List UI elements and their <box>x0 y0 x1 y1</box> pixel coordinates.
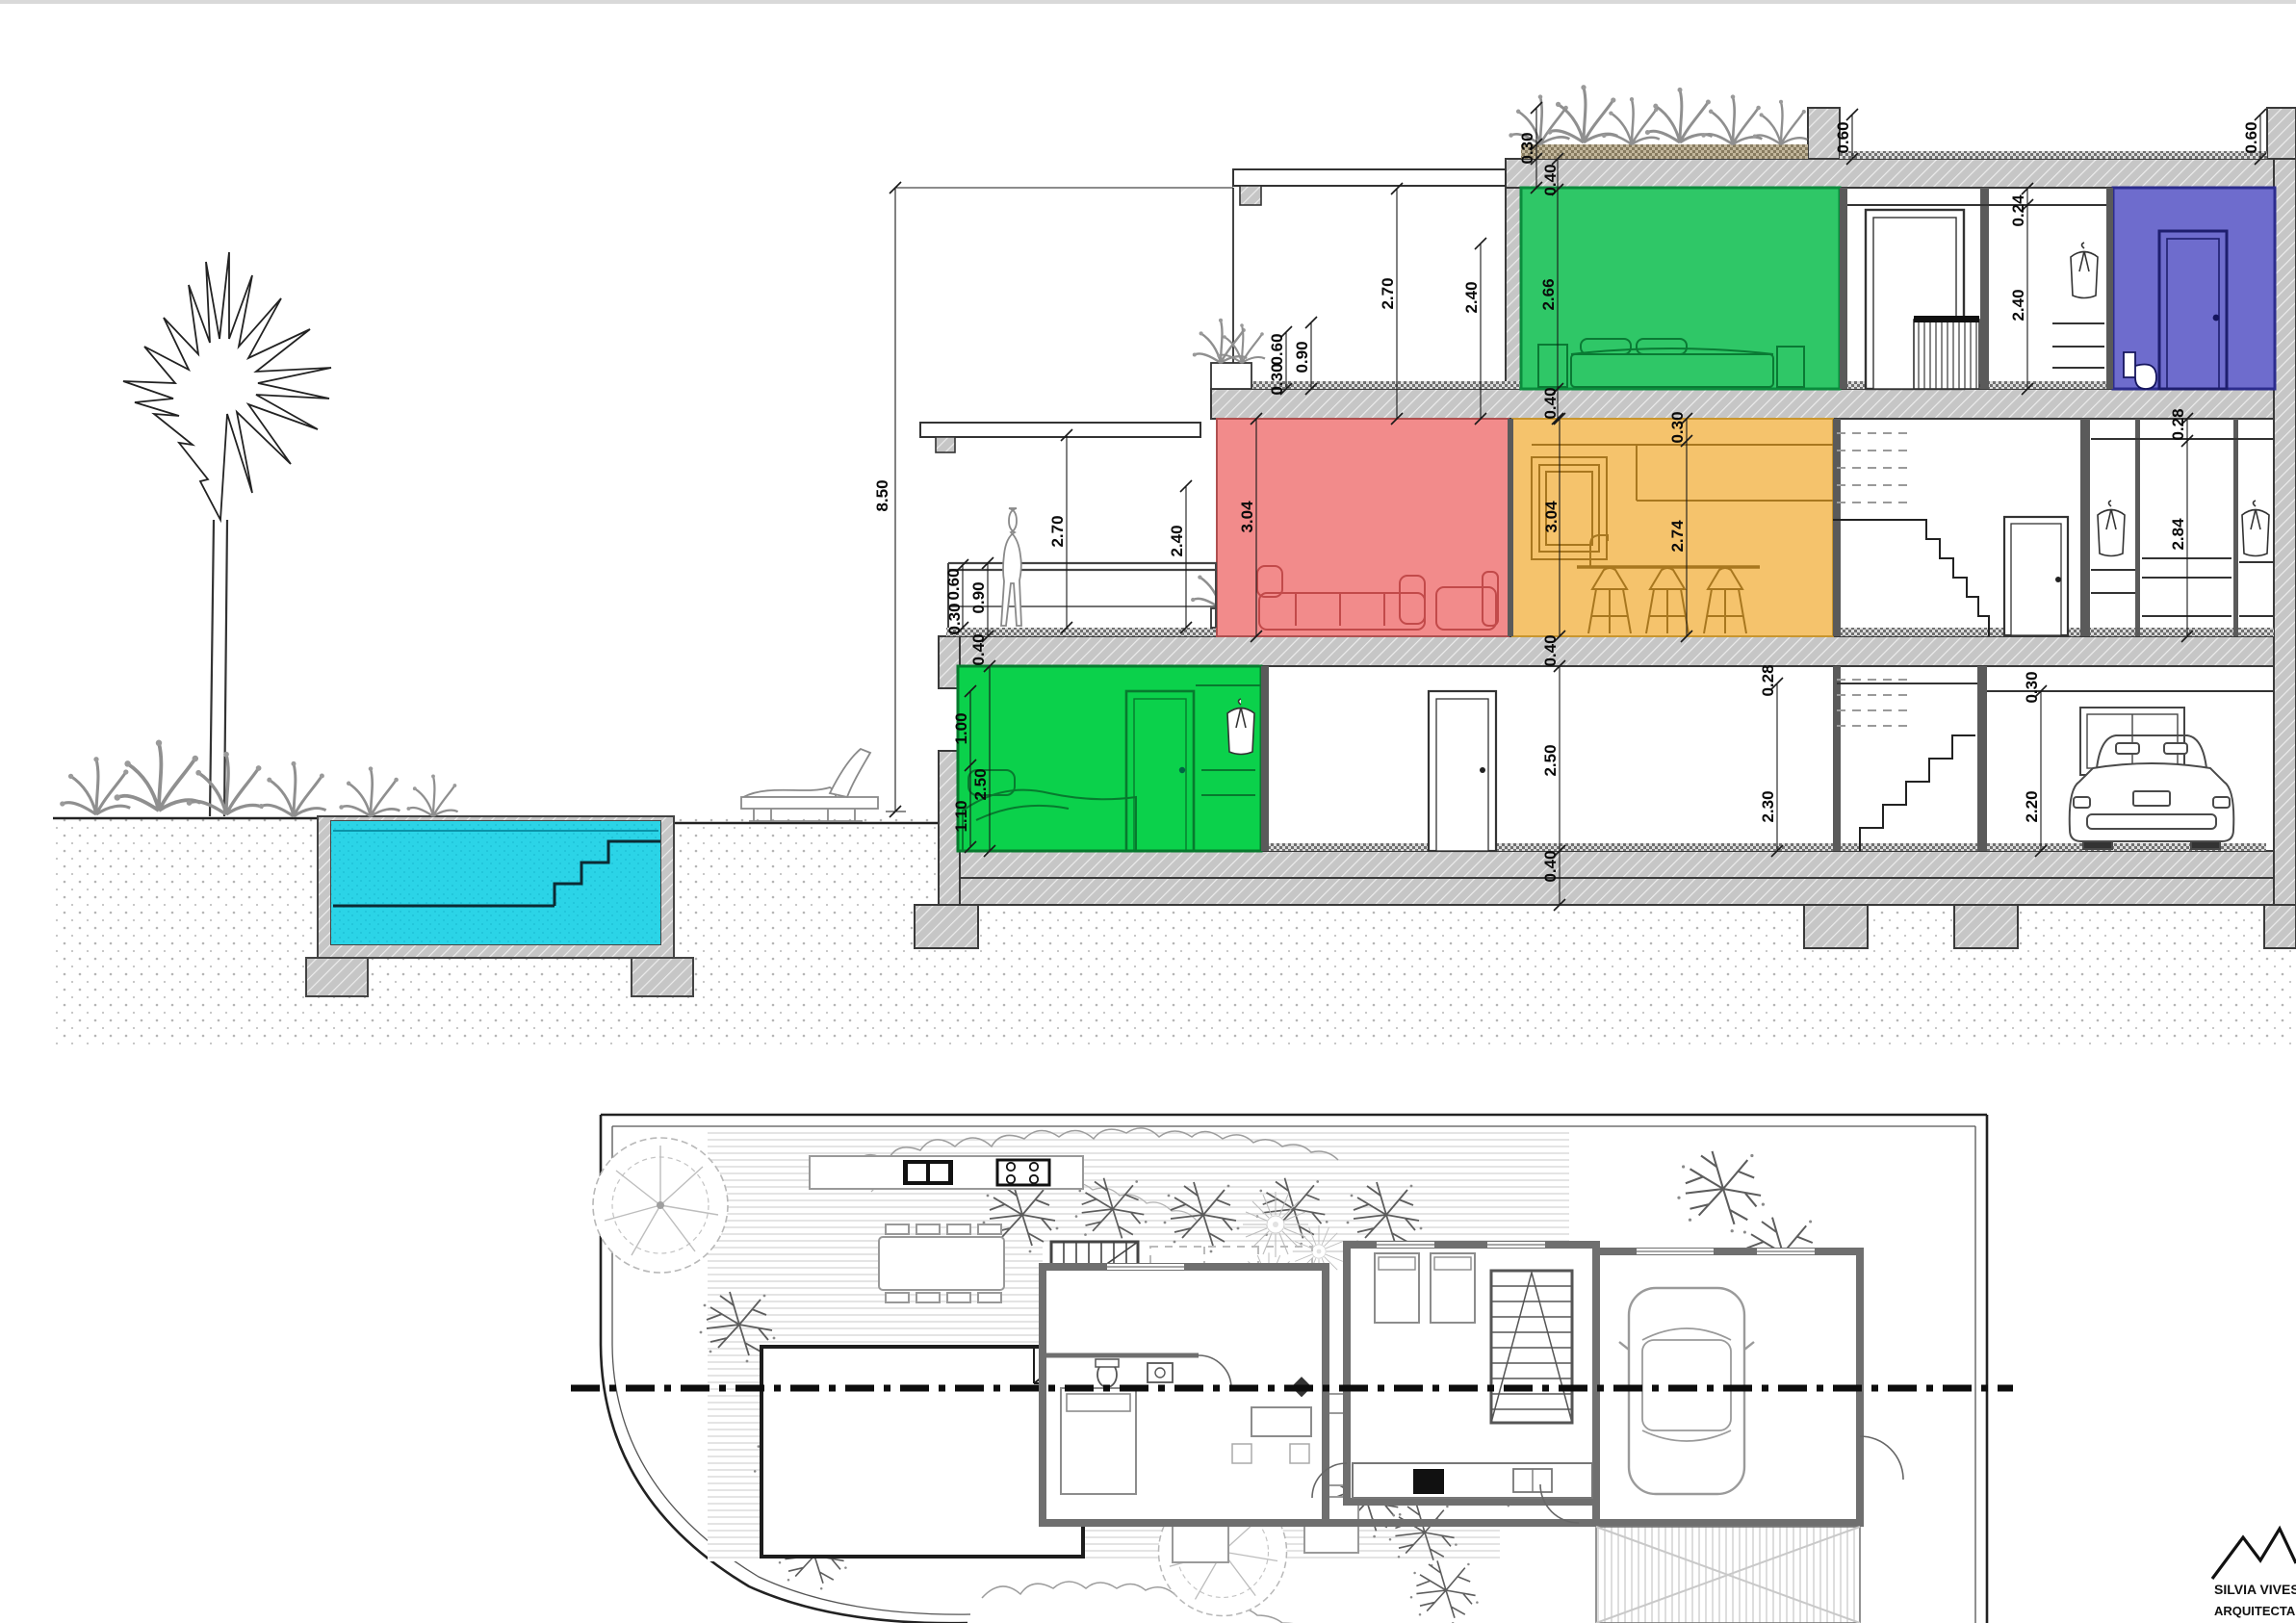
upper-overhang <box>1233 169 1506 186</box>
pool-footing-left <box>306 958 368 996</box>
footing-pad <box>2264 905 2296 948</box>
dim-label: 2.40 <box>1462 281 1481 313</box>
stair-guard <box>1914 320 1979 389</box>
roof-parapet-right <box>2267 108 2296 159</box>
dim-label: 0.40 <box>1541 634 1560 666</box>
twig-tree <box>1677 1151 1765 1232</box>
dim-label: 0.40 <box>1541 164 1560 195</box>
dim-label: 0.60 <box>1834 121 1852 153</box>
palm-fronds <box>123 252 331 520</box>
dim-label: 0.90 <box>969 581 988 613</box>
deck-chair <box>741 749 878 821</box>
ground-bushes <box>60 740 457 816</box>
dim-label: 3.04 <box>1238 501 1256 533</box>
stove-icon <box>997 1160 1049 1185</box>
dim-label: 0.30 <box>945 603 964 634</box>
stairs-mid <box>1911 520 1989 636</box>
dim-label: 0.24 <box>2009 194 2027 227</box>
logo-architect-name: SILVIA VIVES T <box>2214 1582 2296 1597</box>
large-tree <box>593 1138 728 1273</box>
dim-label: 0.40 <box>969 633 988 665</box>
person-figure <box>1001 508 1021 626</box>
upper-overhang-bracket <box>1240 186 1261 205</box>
room-bathroom-upper <box>2113 188 2275 389</box>
section-drawing: 8.502.702.400.600.900.300.403.043.040.30… <box>53 85 2296 1044</box>
roof-deck-finish <box>1840 151 2267 159</box>
dim-label: 2.74 <box>1668 520 1687 553</box>
room-bedroom-lower <box>958 666 1261 851</box>
dim-label: 0.60 <box>1268 333 1286 365</box>
drawing-canvas: 8.502.702.400.600.900.300.403.043.040.30… <box>0 0 2296 1623</box>
architectural-drawing-sheet: 8.502.702.400.600.900.300.403.043.040.30… <box>0 0 2296 1623</box>
ground-hall-door <box>1429 691 1496 851</box>
room-bedroom-upper <box>1521 188 1840 389</box>
dim-label: 1.10 <box>952 800 970 832</box>
dim-label: 0.40 <box>1541 387 1560 419</box>
dim-label: 0.30 <box>1518 132 1536 164</box>
dim-label: 2.40 <box>2009 289 2027 321</box>
driveway <box>1596 1527 1860 1623</box>
plan-stove <box>1413 1469 1444 1494</box>
footing-pad <box>1804 905 1868 948</box>
dim-label: 2.70 <box>1379 277 1397 309</box>
palm-tree <box>123 252 331 816</box>
dim-label: 0.30 <box>1268 363 1286 395</box>
terrace-railing <box>948 563 1217 628</box>
roof-planter-soil-tint <box>1521 144 1808 159</box>
window-top-edge <box>0 0 2296 4</box>
twig-tree <box>1410 1560 1479 1623</box>
dim-label: 8.50 <box>873 479 891 511</box>
dim-label: 2.40 <box>1168 525 1186 556</box>
dim-label: 0.90 <box>1293 341 1311 373</box>
floor2-slab <box>1211 389 2296 419</box>
middle-overhang <box>920 423 1200 437</box>
dim-label: 2.30 <box>1759 790 1777 822</box>
dim-label: 0.30 <box>1668 411 1687 443</box>
footing-strip <box>939 878 2296 905</box>
roof-planter-plants <box>1509 85 1807 144</box>
dim-label: 0.60 <box>944 568 963 600</box>
upper-left-wall <box>1506 188 1521 389</box>
door-handle <box>2213 315 2220 322</box>
stairs-ground <box>1860 735 1975 851</box>
footing-pad <box>915 905 978 948</box>
middle-stair-zone <box>1833 433 2274 636</box>
dim-label: 0.28 <box>2169 408 2187 440</box>
roof-slab <box>1506 159 2296 188</box>
ground-slab <box>939 851 2296 878</box>
room-living <box>1217 419 1509 636</box>
logo-mountain-icon <box>2212 1529 2296 1579</box>
dim-label: 0.60 <box>2242 121 2260 153</box>
architect-logo: SILVIA VIVES T ARQUITECTA Col. 12.831 C <box>2212 1529 2296 1623</box>
dining-table <box>879 1224 1004 1302</box>
right-wall <box>2274 159 2296 905</box>
middle-overhang-bracket <box>936 437 955 452</box>
dim-label: 0.30 <box>2023 671 2041 703</box>
logo-architect-title: ARQUITECTA <box>2214 1604 2296 1618</box>
dim-label: 3.04 <box>1542 501 1561 533</box>
dim-label: 0.40 <box>1541 850 1560 882</box>
palm-trunk <box>210 520 227 816</box>
footing-pad <box>1954 905 2018 948</box>
floor1-slab <box>939 636 2296 666</box>
plan-stair-central <box>1491 1271 1572 1423</box>
dim-label: 2.84 <box>2169 518 2187 551</box>
upper-stair-hall <box>1847 205 2106 389</box>
ground-stair-garage <box>1837 680 2274 851</box>
house-plan <box>1043 1245 1903 1523</box>
dim-label: 2.70 <box>1048 515 1067 547</box>
pool-water-texture <box>331 821 660 944</box>
pool-plan <box>761 1347 1083 1557</box>
dim-label: 2.20 <box>2023 790 2041 822</box>
dim-label: 0.28 <box>1759 664 1777 696</box>
outdoor-kitchen <box>810 1156 1083 1189</box>
pool-footing-right <box>632 958 693 996</box>
dim-label: 2.50 <box>971 768 990 800</box>
dim-label: 2.50 <box>1541 744 1560 776</box>
floor-plan <box>571 1115 2013 1623</box>
dim-label: 1.00 <box>952 712 970 744</box>
earth-texture-right <box>939 905 2296 1044</box>
dim-label: 2.66 <box>1539 278 1558 310</box>
